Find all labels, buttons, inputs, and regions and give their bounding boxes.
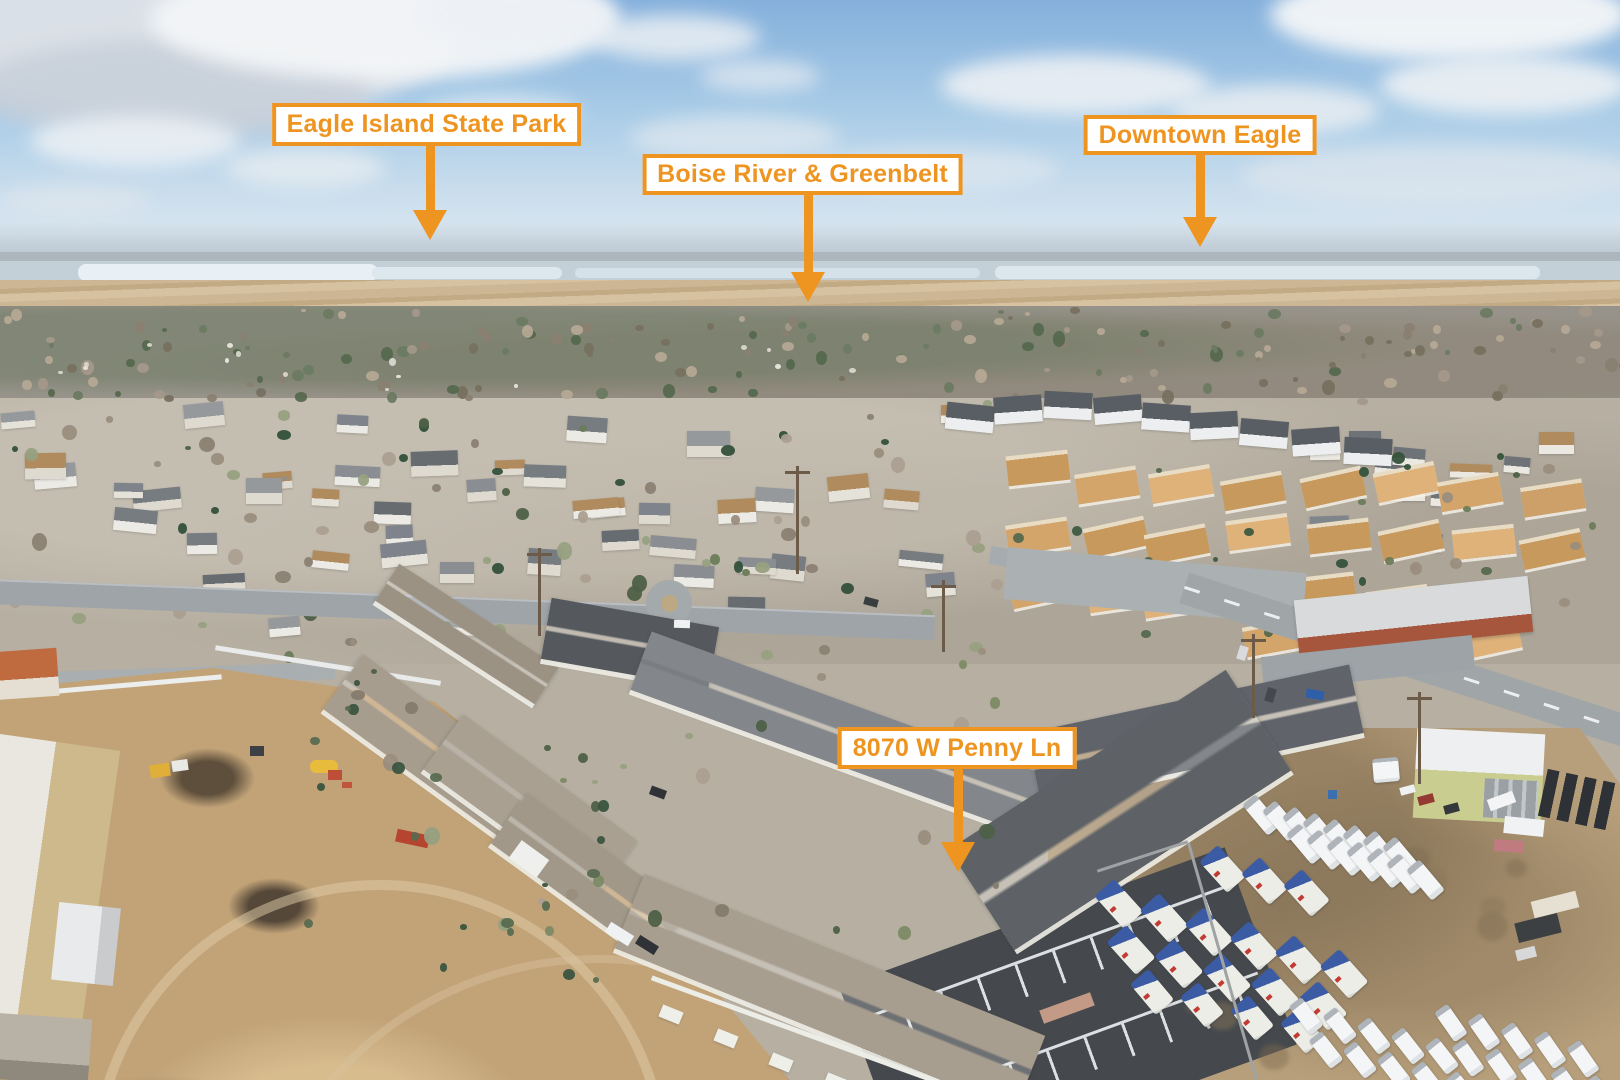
vegetation-dot: [544, 745, 551, 751]
power-pole: [538, 548, 541, 636]
vegetation-dot: [993, 882, 1000, 889]
vegetation-dot: [592, 780, 598, 784]
vegetation-dot: [833, 926, 841, 934]
cement-mixer: [171, 759, 188, 772]
loader-yellow: [149, 763, 171, 779]
river-strip: [575, 268, 980, 278]
dark-equipment: [250, 746, 264, 756]
vegetation-dot: [696, 768, 711, 785]
power-pole: [796, 466, 799, 574]
dirt-pile-north: [160, 748, 255, 808]
industrial-building: [0, 732, 120, 1048]
pond-mid: [372, 267, 562, 279]
blue-pickup: [1305, 689, 1324, 701]
vegetation-dot: [620, 764, 626, 769]
dark-van: [649, 786, 667, 800]
pond-west: [78, 264, 378, 281]
vegetation-dot: [990, 697, 1001, 708]
callout-label: 8070 W Penny Ln: [838, 727, 1077, 769]
vegetation-dot: [591, 801, 600, 812]
vegetation-dot: [979, 824, 994, 839]
vegetation-dot: [756, 720, 767, 732]
vegetation-dot: [597, 836, 605, 844]
terracotta-roof-house: [0, 648, 60, 700]
portable-toilet: [1328, 790, 1337, 799]
dirt-smear: [420, 670, 760, 800]
callout-text: 8070 W Penny Ln: [853, 734, 1062, 763]
callout-arrow-shaft: [954, 767, 963, 844]
vegetation-dot: [560, 778, 567, 783]
white-truck-street: [674, 620, 690, 629]
arrow-down-icon: [941, 842, 975, 872]
building: [823, 1072, 848, 1080]
power-pole: [1252, 634, 1255, 718]
vegetation-dot: [598, 800, 609, 811]
vegetation-dot: [715, 904, 729, 916]
power-pole: [942, 580, 945, 652]
canopy-structure: [51, 902, 121, 986]
green-shop-building: [1413, 728, 1546, 825]
aerial-photo: Eagle Island State Park Boise River & Gr…: [0, 0, 1620, 1080]
vegetation-dot: [898, 926, 911, 940]
river-strip-east: [995, 266, 1540, 279]
pink-classic-car: [1494, 839, 1525, 853]
red-equipment: [328, 770, 342, 780]
sky: [0, 0, 1620, 252]
vegetation-dot: [578, 753, 589, 764]
horizon-haze: [0, 222, 1620, 256]
vegetation-dot: [685, 733, 693, 739]
vegetation-dot: [817, 673, 827, 680]
vegetation-dot: [354, 680, 359, 686]
cul-de-sac-island: [661, 595, 678, 612]
rubble-shed: [0, 1013, 92, 1080]
vegetation-dot: [954, 717, 970, 734]
dirt-lot: [0, 655, 790, 1080]
power-pole: [1418, 692, 1421, 784]
greenbelt-tree-band: [0, 306, 1620, 404]
vegetation-dot: [918, 830, 932, 845]
